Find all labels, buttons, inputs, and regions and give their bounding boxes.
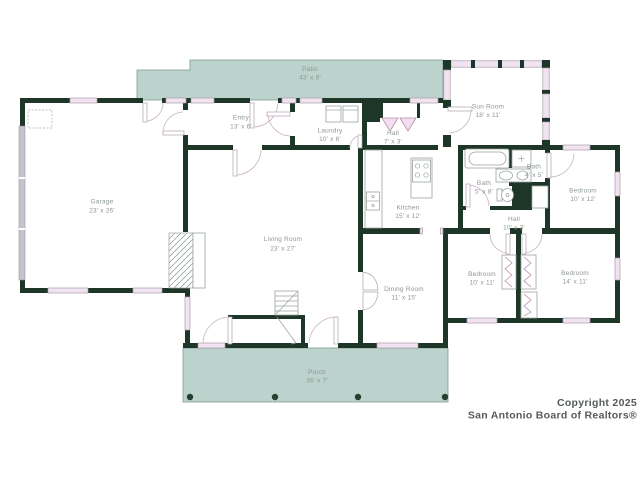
range-icon [413, 160, 431, 182]
svg-text:Sun Room: Sun Room [472, 104, 504, 111]
room-label-bedroom-northeast: Bedroom 10' x 12' [569, 188, 597, 204]
room-label-hall-bedrooms: Hall 10' x 3' [503, 216, 525, 232]
svg-text:18' x 11': 18' x 11' [475, 112, 500, 119]
laundry-appliances [326, 106, 358, 122]
svg-text:Patio: Patio [302, 66, 318, 73]
svg-text:10' x 6': 10' x 6' [319, 136, 341, 143]
room-label-bedroom-south: Bedroom 10' x 11' [468, 271, 496, 287]
svg-text:5' x 8': 5' x 8' [475, 189, 493, 196]
svg-text:15' x 12': 15' x 12' [395, 213, 421, 220]
svg-text:Living Room: Living Room [264, 236, 302, 243]
svg-text:Entry: Entry [233, 115, 250, 122]
svg-text:Bath: Bath [477, 180, 491, 187]
svg-text:23' x 27': 23' x 27' [270, 246, 296, 253]
kitchen-counter [365, 150, 382, 228]
svg-text:Bedroom: Bedroom [561, 270, 589, 277]
fireplace [169, 233, 205, 288]
solid-chase [362, 98, 380, 122]
room-label-bath-main: Bath 5' x 8' [475, 180, 493, 196]
room-label-patio: Patio 43' x 9' [299, 66, 321, 82]
room-label-porch: Porch 36' x 7' [306, 369, 328, 385]
copyright-notice: Copyright 2025 San Antonio Board of Real… [468, 397, 637, 422]
hearth [193, 233, 205, 288]
garage-door [19, 126, 25, 280]
svg-text:10' x 11': 10' x 11' [469, 280, 494, 287]
room-label-entry: Entry 13' x 6' [230, 115, 252, 131]
floor-plan-canvas: Patio 43' x 9' Sun Room 18' x 11' Entry … [0, 0, 640, 480]
svg-text:Laundry: Laundry [318, 128, 343, 135]
svg-text:36' x 7': 36' x 7' [306, 378, 328, 385]
svg-text:7' x 3': 7' x 3' [384, 139, 402, 146]
porch-post [187, 394, 193, 400]
svg-text:Kitchen: Kitchen [396, 205, 419, 212]
patio-area [137, 60, 443, 100]
svg-text:10' x 3': 10' x 3' [503, 225, 525, 232]
utility-box-dashed [28, 110, 52, 128]
svg-text:Hall: Hall [508, 216, 520, 223]
room-label-bedroom-southeast: Bedroom 14' x 11' [561, 270, 589, 286]
floor-plan-drawing: Patio 43' x 9' Sun Room 18' x 11' Entry … [0, 0, 640, 480]
room-label-dining-room: Dining Room 11' x 15' [384, 286, 424, 302]
hall-closet [532, 186, 548, 208]
svg-text:Hall: Hall [387, 130, 399, 137]
svg-text:23' x 26': 23' x 26' [89, 208, 115, 215]
fireplace-icon [169, 233, 193, 288]
room-label-hall-upper: Hall 7' x 3' [384, 130, 402, 146]
room-label-bath-small: Bath 4' x 5' [525, 164, 543, 180]
room-label-living-room: Living Room 23' x 27' [264, 236, 302, 253]
porch-post [442, 394, 448, 400]
solid-closet [512, 186, 532, 210]
svg-text:Porch: Porch [308, 369, 326, 376]
svg-text:Garage: Garage [91, 199, 114, 206]
svg-text:Dining Room: Dining Room [384, 286, 424, 293]
svg-text:Copyright 2025: Copyright 2025 [557, 397, 637, 409]
svg-text:Bedroom: Bedroom [569, 188, 597, 195]
svg-text:11' x 15': 11' x 15' [391, 295, 416, 302]
svg-text:43' x 9': 43' x 9' [299, 75, 321, 82]
svg-text:San Antonio Board of Realtors®: San Antonio Board of Realtors® [468, 410, 637, 422]
svg-text:Bath: Bath [527, 164, 541, 171]
svg-text:14' x 11': 14' x 11' [562, 279, 587, 286]
room-label-laundry: Laundry 10' x 6' [318, 128, 343, 144]
svg-text:10' x 12': 10' x 12' [570, 196, 596, 203]
dryer-icon [343, 106, 358, 122]
svg-text:13' x 6': 13' x 6' [230, 124, 252, 131]
svg-text:4' x 5': 4' x 5' [525, 172, 543, 179]
room-label-garage: Garage 23' x 26' [89, 199, 115, 215]
room-label-kitchen: Kitchen 15' x 12' [395, 205, 421, 221]
porch-post [355, 394, 361, 400]
svg-text:Bedroom: Bedroom [468, 271, 496, 278]
washer-icon [326, 106, 341, 122]
room-label-sun-room: Sun Room 18' x 11' [472, 104, 504, 120]
porch-post [272, 394, 278, 400]
